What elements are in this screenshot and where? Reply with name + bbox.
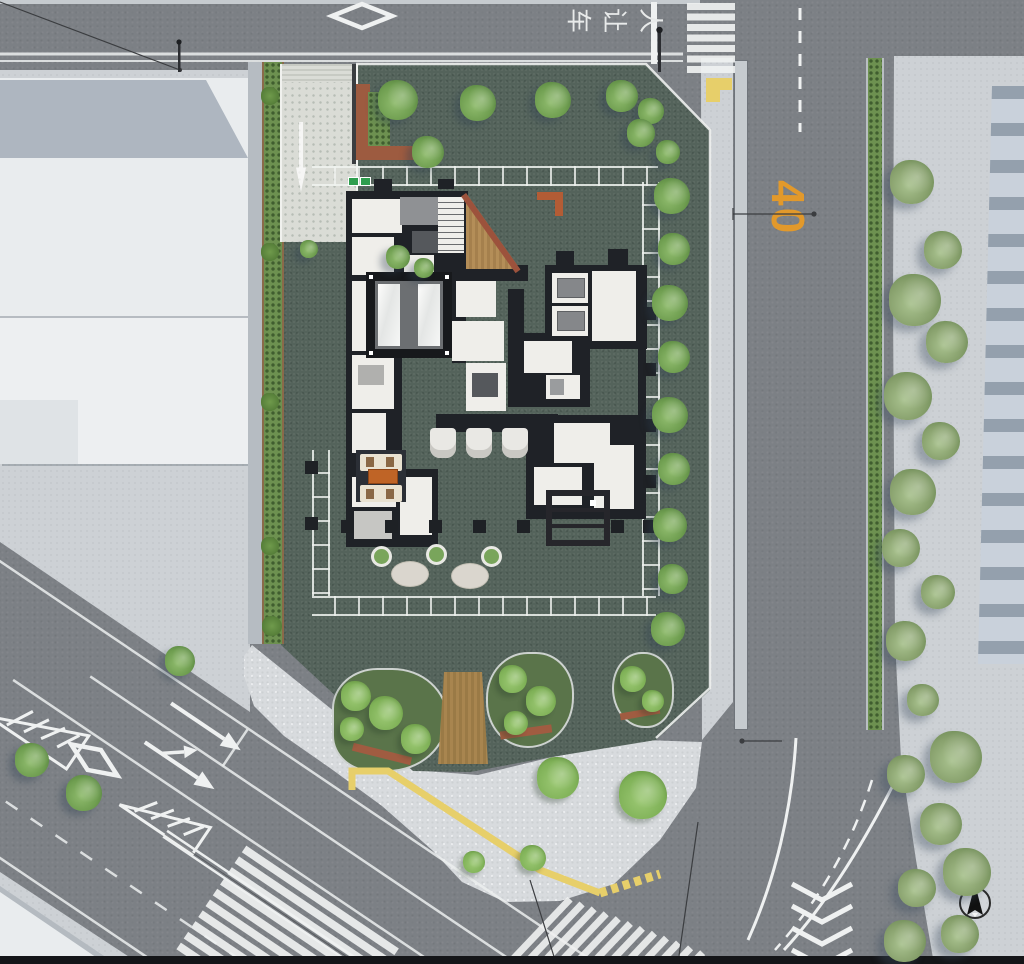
colonnade-column [429,520,442,533]
green-label-chip [348,177,359,186]
hedge-shrub [261,87,279,105]
hedge-shrub [261,537,279,555]
colonnade-column [305,517,318,530]
site-tree [658,341,690,373]
site-tree [414,258,434,278]
plan-corridor [452,321,504,361]
site-plan-canvas: 车 让 人 40 [0,0,1024,964]
plan-wall-stub [608,249,628,265]
diagonal-road-markings [0,555,609,964]
street-tree [943,848,991,896]
bed-bush [499,665,527,693]
skylight-pane [378,284,400,346]
yield-char-1: 车 [564,8,592,33]
colonnade-column [517,520,530,533]
plan-room [352,199,402,233]
bed-bush [341,681,371,711]
sofa-cushion [386,457,394,467]
plan-room [524,341,572,373]
skylight-corner-dot [369,351,373,355]
plan-shaft [412,231,438,253]
colonnade-column [341,520,354,533]
site-tree [656,140,680,164]
median-tree [165,646,195,676]
sofa-cushion [366,457,374,467]
plan-room [352,413,386,453]
gravel-pad [451,563,489,589]
skylight-frame [366,272,452,358]
site-tree [535,82,571,118]
street-tree [890,160,934,204]
street-tree [889,274,941,326]
lounge-chair [430,428,456,458]
plaza-bush [463,851,485,873]
sofa-cushion [386,489,394,499]
site-tree [652,285,688,321]
diamond-marking-top-road [332,4,392,28]
street-tree [898,869,936,907]
bed-bush [526,686,556,716]
bed-bush [504,711,528,735]
bed-bush [369,696,403,730]
plan-room [456,281,496,317]
site-tree [300,240,318,258]
sofa-cushion [366,489,374,499]
site-tree [460,85,496,121]
top-road-edge-lines [0,54,683,61]
green-label-chip [360,177,371,186]
pergola-beam [552,524,604,528]
pergola [546,490,610,546]
site-tree [658,564,688,594]
bed-bush [642,690,664,712]
plan-room [592,271,636,341]
hedge-shrub [261,243,279,261]
skylight-corner-dot [445,275,449,279]
plaza-bush [537,757,579,799]
plan-elevator-car [557,278,585,298]
yield-road-text: 车 让 人 [564,8,664,33]
street-tree [926,321,968,363]
colonnade-column [611,520,624,533]
plaza-bush [520,845,546,871]
lounge-chair [466,428,492,458]
colonnade-column [385,520,398,533]
plan-wall-stub [556,251,574,265]
plan-fixture [358,365,384,385]
median-tree [66,775,102,811]
site-tree [386,245,410,269]
street-tree [890,469,936,515]
median-tree [15,743,49,777]
street-tree [882,529,920,567]
planter-pot [371,546,392,567]
colonnade-column [643,475,656,488]
plan-wall-stub [374,179,392,191]
street-tree [884,920,926,962]
site-tree [658,453,690,485]
site-tree [658,233,690,265]
street-tree [907,684,939,716]
bed-bush [340,717,364,741]
lounge-chair [502,428,528,458]
brick-bench [555,192,563,216]
coffee-table [368,469,398,484]
skylight-corner-dot [369,275,373,279]
street-tree [922,422,960,460]
plan-elevator-car [557,311,585,331]
tactile-pad-northeast [706,78,732,102]
gravel-pad [391,561,429,587]
speed-limit-marking: 40 [762,180,814,235]
skylight-corner-dot [445,351,449,355]
bed-bush [620,666,646,692]
street-tree [887,755,925,793]
street-tree [930,731,982,783]
street-tree [941,915,979,953]
crosswalk-north [687,3,735,73]
street-tree [924,231,962,269]
hedge-shrub [261,393,279,411]
pergola-beam [552,508,604,512]
street-tree [886,621,926,661]
site-tree [653,508,687,542]
site-tree [651,612,685,646]
street-tree [920,803,962,845]
tactile-guide-path [352,771,660,893]
bed-bush [401,724,431,754]
plan-lift-car [550,379,564,395]
planter-pot [426,544,447,565]
colonnade-column [473,520,486,533]
site-tree [606,80,638,112]
crosswalk-south [514,888,703,964]
plan-equipment-room [400,197,438,225]
street-tree [884,372,932,420]
hedge-shrub [262,616,282,636]
colonnade-column [643,363,656,376]
plan-shaft [472,373,498,397]
colonnade-column [305,461,318,474]
skylight-pane [418,284,440,346]
yield-char-2: 让 [600,8,628,33]
site-tree [627,119,655,147]
bottom-frame-strip [0,956,1024,964]
street-tree [921,575,955,609]
plan-stair [438,197,464,253]
site-tree [378,80,418,120]
site-tree [654,178,690,214]
site-tree [412,136,444,168]
planter-pot [481,546,502,567]
plan-wall-stub [438,179,454,189]
chevron-markings [792,884,852,964]
pergola-light [590,500,596,506]
site-tree [652,397,688,433]
plaza-bush [619,771,667,819]
